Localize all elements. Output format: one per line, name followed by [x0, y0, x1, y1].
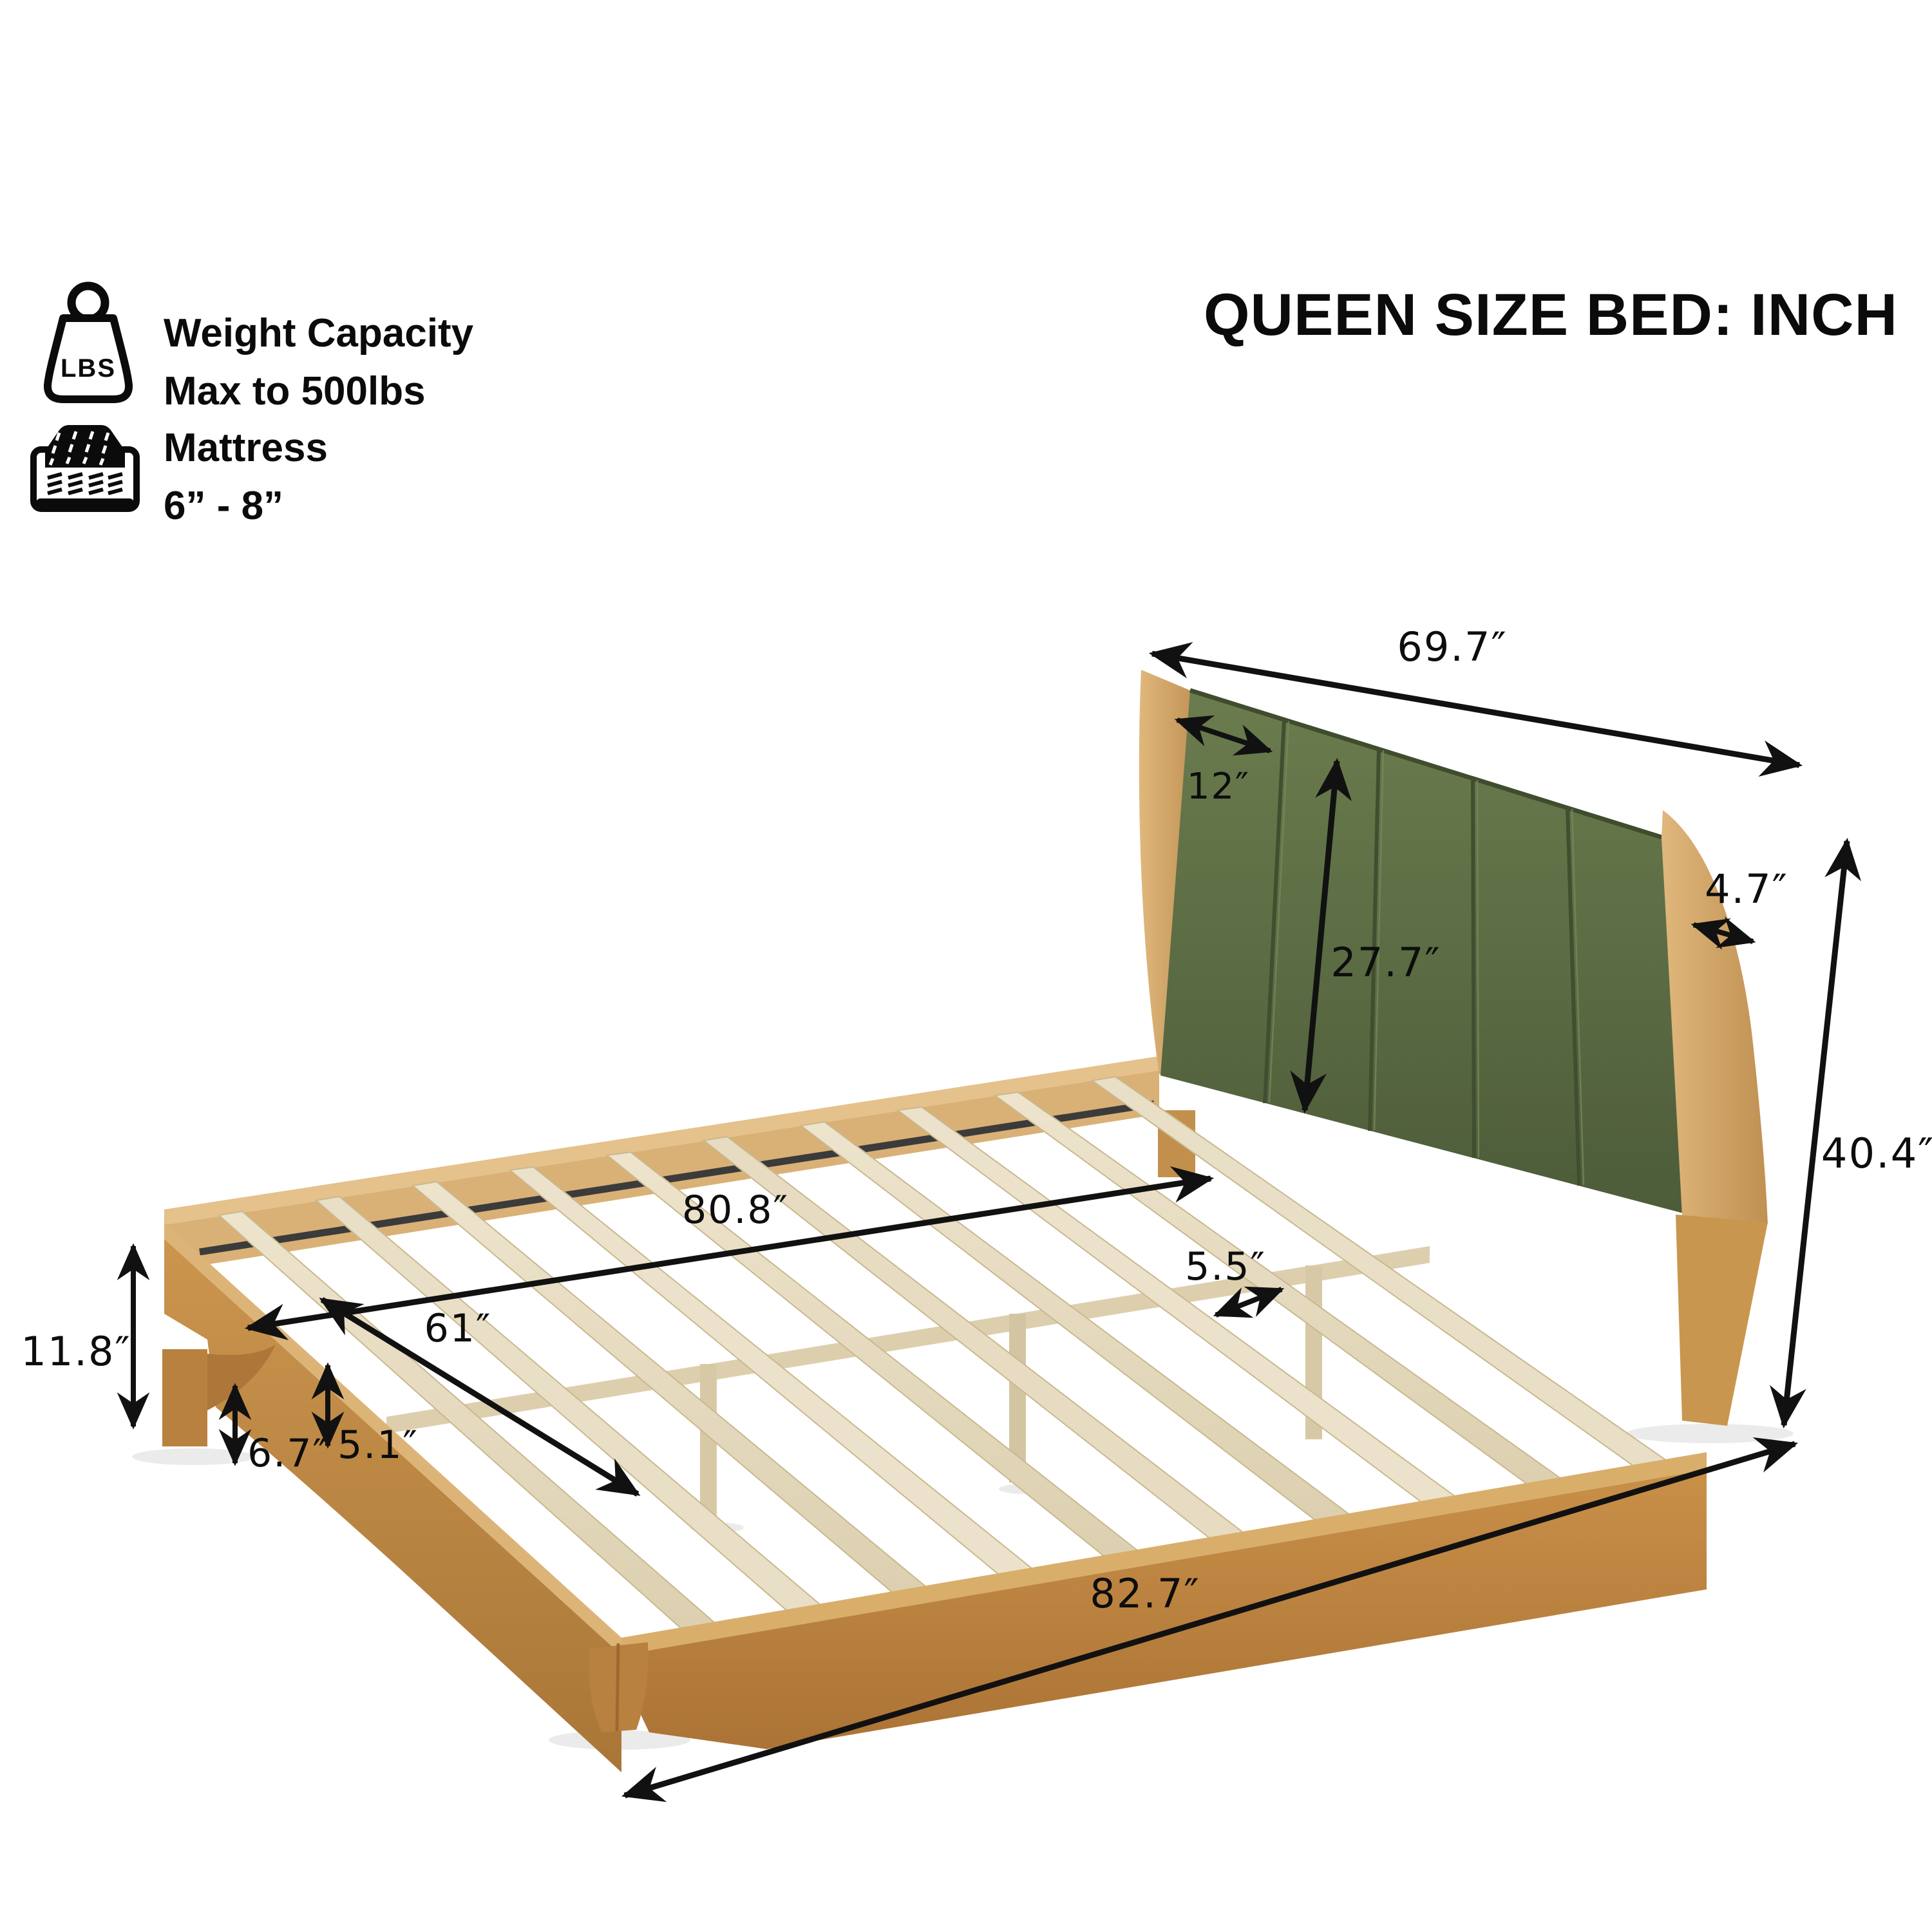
dim-post-depth: 4.7″ — [1694, 866, 1788, 942]
weight-capacity-line2: Max to 500lbs — [164, 369, 426, 413]
dim-frame-side-height: 11.8″ — [21, 1246, 133, 1426]
dim-panel-height-label: 27.7″ — [1331, 939, 1441, 986]
mattress-line1: Mattress — [164, 426, 328, 470]
mattress-icon — [33, 425, 137, 509]
page-title: QUEEN SIZE BED: INCH — [1204, 282, 1898, 348]
mattress-line2: 6” - 8” — [164, 484, 283, 528]
front-leg — [589, 1642, 648, 1732]
dim-floor-clearance-label: 6.7″ — [247, 1431, 328, 1476]
mattress-badge: Mattress 6” - 8” — [33, 425, 328, 528]
dim-interior-length-label: 80.8″ — [682, 1188, 789, 1233]
bed-illustration — [132, 670, 1794, 1772]
dim-channel-width-label: 12″ — [1187, 766, 1250, 808]
dim-rail-face-height-label: 5.1″ — [337, 1423, 419, 1468]
dim-frame-side-height-label: 11.8″ — [21, 1328, 131, 1375]
weight-capacity-line1: Weight Capacity — [164, 311, 474, 355]
product-dimension-diagram: QUEEN SIZE BED: INCH LBS Weight Capacity… — [0, 0, 1932, 1932]
dim-interior-width-label: 61″ — [424, 1306, 492, 1351]
dim-post-depth-label: 4.7″ — [1705, 866, 1788, 913]
headboard-right-leg — [1676, 1215, 1768, 1426]
weight-icon-label: LBS — [61, 354, 116, 383]
weight-icon: LBS — [48, 286, 129, 399]
dim-overall-length-label: 82.7″ — [1090, 1570, 1200, 1617]
far-side-rail — [164, 1056, 1159, 1271]
weight-capacity-badge: LBS Weight Capacity Max to 500lbs — [48, 286, 474, 413]
dim-headboard-height-label: 40.4″ — [1821, 1130, 1932, 1178]
dim-headboard-height: 40.4″ — [1784, 841, 1932, 1425]
dim-slat-gap-label: 5.5″ — [1185, 1244, 1266, 1289]
dim-headboard-width-label: 69.7″ — [1397, 623, 1507, 670]
